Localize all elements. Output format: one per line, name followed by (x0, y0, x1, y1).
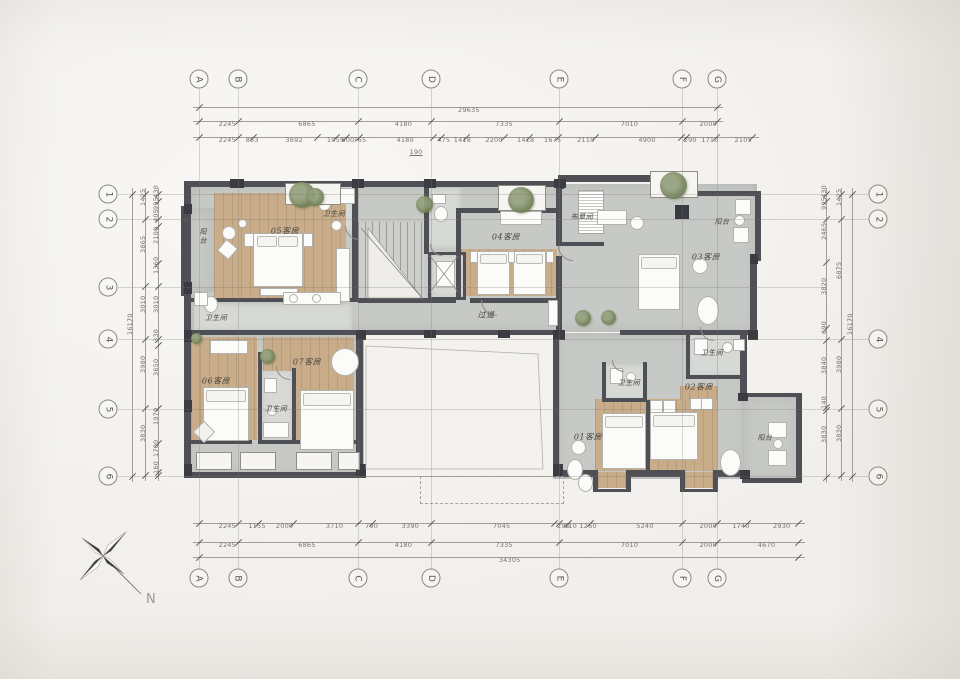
grid-bubble-bottom-A: A (190, 569, 209, 588)
wall-seg-42 (643, 362, 647, 402)
column-13 (740, 470, 750, 479)
shower (339, 188, 355, 204)
wall-seg-15 (593, 489, 631, 492)
grid-bubble-left-6: 6 (99, 467, 118, 486)
north-label: N (146, 592, 156, 607)
room-label-04: 04客房 (492, 232, 520, 243)
room-label-01: 01客房 (574, 432, 602, 443)
nightstand (470, 251, 478, 263)
wardrobe-06 (210, 340, 248, 354)
grid-bubble-glyph: B (233, 76, 243, 82)
grid-bubble-bottom-E: E (550, 569, 569, 588)
pillow (653, 415, 695, 427)
room-label-bath-03: 卫生间 (701, 348, 724, 358)
grid-line-row-5 (118, 409, 868, 410)
grid-bubble-left-3: 3 (99, 278, 118, 297)
pouf (578, 474, 593, 492)
room-label-balcony-right: 阳台 (758, 433, 773, 443)
grid-bubble-glyph: F (677, 575, 687, 580)
dim-left-total-line (132, 188, 133, 482)
grid-bubble-glyph: 6 (103, 473, 113, 479)
toilet (264, 378, 277, 393)
washer (733, 339, 745, 351)
grid-line-col-A (199, 89, 200, 569)
pillow (206, 390, 246, 402)
terrace-planter (338, 452, 360, 470)
grid-bubble-glyph: C (353, 76, 363, 82)
plant-top-f (660, 172, 687, 199)
grid-line-col-D (431, 89, 432, 569)
room-label-05: 05客房 (271, 226, 299, 237)
grid-bubble-glyph: 1 (873, 191, 883, 197)
grid-bubble-glyph: D (426, 76, 436, 83)
room-label-bath-top: 卫生间 (323, 209, 346, 219)
room-label-03: 03客房 (692, 252, 720, 263)
chair (768, 450, 787, 466)
grid-bubble-top-D: D (422, 70, 441, 89)
pillow (605, 416, 643, 428)
wall-seg-7 (742, 393, 800, 397)
dim-top-major-line (193, 121, 723, 122)
grid-bubble-right-5: 5 (869, 400, 888, 419)
room-label-bath-mid: 卫生间 (205, 313, 228, 323)
column-0 (230, 179, 244, 188)
grid-bubble-glyph: C (353, 575, 363, 581)
grid-bubble-left-2: 2 (99, 210, 118, 229)
grid-bubble-left-1: 1 (99, 185, 118, 204)
wood-bay-02 (685, 472, 713, 488)
minibar (650, 400, 663, 413)
pillow (257, 236, 277, 247)
grid-bubble-bottom-G: G (708, 569, 727, 588)
column-10 (750, 254, 758, 264)
grid-bubble-left-5: 5 (99, 400, 118, 419)
grid-bubble-top-C: C (349, 70, 368, 89)
room-label-linen: 布草间 (571, 212, 594, 222)
plant-03 (601, 310, 616, 325)
grid-bubble-glyph: D (426, 575, 436, 582)
grid-bubble-glyph: 6 (873, 473, 883, 479)
wall-seg-39 (686, 375, 746, 379)
grid-bubble-glyph: G (712, 76, 722, 83)
grid-line-col-C (358, 89, 359, 569)
column-3 (554, 179, 566, 188)
wall-seg-29 (358, 298, 456, 303)
plant-67 (260, 349, 275, 364)
void-open-below (363, 334, 555, 477)
floor-plan-sheet: 05客房 卫生间 阳台 卫生间 04客房 布草间 过道 03客房 阳台 卫生间 … (0, 0, 960, 679)
console (548, 300, 558, 326)
bathtub-03 (697, 296, 719, 325)
wall-seg-31 (363, 330, 557, 335)
basin (312, 294, 321, 303)
grid-line-row-4 (118, 339, 868, 340)
grid-bubble-bottom-D: D (422, 569, 441, 588)
grid-line-col-E (559, 89, 560, 569)
grid-bubble-glyph: F (677, 76, 687, 81)
round-tub-07 (331, 348, 359, 376)
grid-line-row-3 (118, 287, 826, 288)
room-label-corridor: 过道 (478, 310, 495, 321)
column-5 (184, 204, 192, 214)
shower (263, 422, 289, 438)
grid-bubble-bottom-C: C (349, 569, 368, 588)
grid-line-row-6 (118, 476, 868, 477)
basin (331, 220, 342, 231)
column-19 (498, 330, 510, 338)
staircase (358, 222, 424, 302)
grid-bubble-right-1: 1 (869, 185, 888, 204)
grid-bubble-right-4: 4 (869, 330, 888, 349)
grid-bubble-glyph: 4 (873, 336, 883, 342)
terrace-planter (196, 452, 232, 470)
wall-seg-45 (258, 352, 262, 444)
grid-bubble-glyph: A (194, 575, 204, 581)
wall-seg-9 (742, 478, 802, 483)
dim-right-total-line (852, 188, 853, 482)
room-label-07: 07客房 (293, 357, 321, 368)
grid-bubble-top-B: B (229, 70, 248, 89)
terrace-planter (296, 452, 332, 470)
table (773, 439, 783, 449)
column-6 (184, 282, 192, 294)
grid-line-row-2 (118, 219, 868, 220)
plant-corridor (575, 310, 591, 326)
plant-top-c2 (306, 188, 324, 206)
column-8 (184, 400, 192, 412)
pillow (278, 236, 298, 247)
plant-top-de (508, 187, 534, 213)
room-label-bath-01: 卫生间 (618, 378, 641, 388)
room-label-02: 02客房 (685, 382, 713, 393)
grid-line-col-F (682, 89, 683, 569)
wall-seg-8 (796, 393, 802, 483)
grid-bubble-top-A: A (190, 70, 209, 89)
grid-bubble-glyph: E (554, 575, 564, 581)
basin (432, 194, 446, 204)
grid-bubble-glyph: E (554, 76, 564, 82)
chaise-03 (597, 210, 627, 225)
wall-seg-46 (292, 368, 296, 442)
grid-bubble-top-G: G (708, 70, 727, 89)
grid-bubble-bottom-B: B (229, 569, 248, 588)
grid-bubble-glyph: 5 (873, 406, 883, 412)
floor-lamp (238, 219, 247, 228)
column-18 (424, 330, 436, 338)
daybed-04 (500, 211, 542, 225)
grid-bubble-top-E: E (550, 70, 569, 89)
grid-line-col-B (238, 89, 239, 569)
wall-seg-33 (188, 330, 358, 335)
column-9 (184, 464, 192, 476)
table (734, 215, 745, 226)
wall-seg-41 (602, 362, 606, 402)
pillow (516, 254, 543, 264)
minibar (663, 400, 676, 413)
grid-line-row-1 (118, 194, 868, 195)
grid-bubble-top-F: F (673, 70, 692, 89)
chair (733, 227, 749, 243)
grid-bubble-glyph: 4 (103, 336, 113, 342)
terrace-planter (240, 452, 276, 470)
grid-bubble-right-6: 6 (869, 467, 888, 486)
grid-bubble-glyph: 1 (103, 191, 113, 197)
wall-seg-38 (686, 333, 690, 379)
nightstand (508, 251, 515, 263)
pillow (303, 393, 351, 406)
chair (735, 199, 751, 215)
elevator-car (436, 261, 455, 287)
pillow (641, 257, 677, 269)
nightstand (546, 251, 554, 263)
grid-line-col-G (717, 89, 718, 569)
wall-seg-18 (680, 489, 718, 492)
column-2 (424, 179, 436, 188)
grid-bubble-glyph: 2 (873, 216, 883, 222)
grid-bubble-glyph: B (233, 575, 243, 581)
wood-bay-01 (598, 472, 626, 488)
room-label-06: 06客房 (202, 376, 230, 387)
grid-bubble-glyph: G (712, 575, 722, 582)
side-table (222, 226, 236, 240)
grid-bubble-left-4: 4 (99, 330, 118, 349)
wall-seg-43 (602, 398, 646, 402)
bathtub-02 (720, 449, 741, 476)
nightstand (244, 233, 254, 247)
wall-seg-23 (184, 472, 366, 478)
column-12 (738, 393, 748, 401)
dim-top-detail-line (193, 137, 759, 138)
shower (194, 292, 208, 306)
nightstand (303, 233, 313, 247)
wall-seg-5 (750, 258, 757, 336)
basin (289, 294, 298, 303)
column-15 (553, 464, 563, 476)
grid-bubble-glyph: 2 (103, 216, 113, 222)
grid-bubble-glyph: 3 (103, 284, 113, 290)
grid-bubble-right-2: 2 (869, 210, 888, 229)
grid-bubble-glyph: A (194, 76, 204, 82)
wall-seg-4 (755, 191, 761, 261)
pillow (480, 254, 507, 264)
dim-sub-190: 190 (409, 148, 422, 156)
grid-bubble-glyph: 5 (103, 406, 113, 412)
canopy-outline (420, 476, 564, 504)
grid-bubble-bottom-F: F (673, 569, 692, 588)
